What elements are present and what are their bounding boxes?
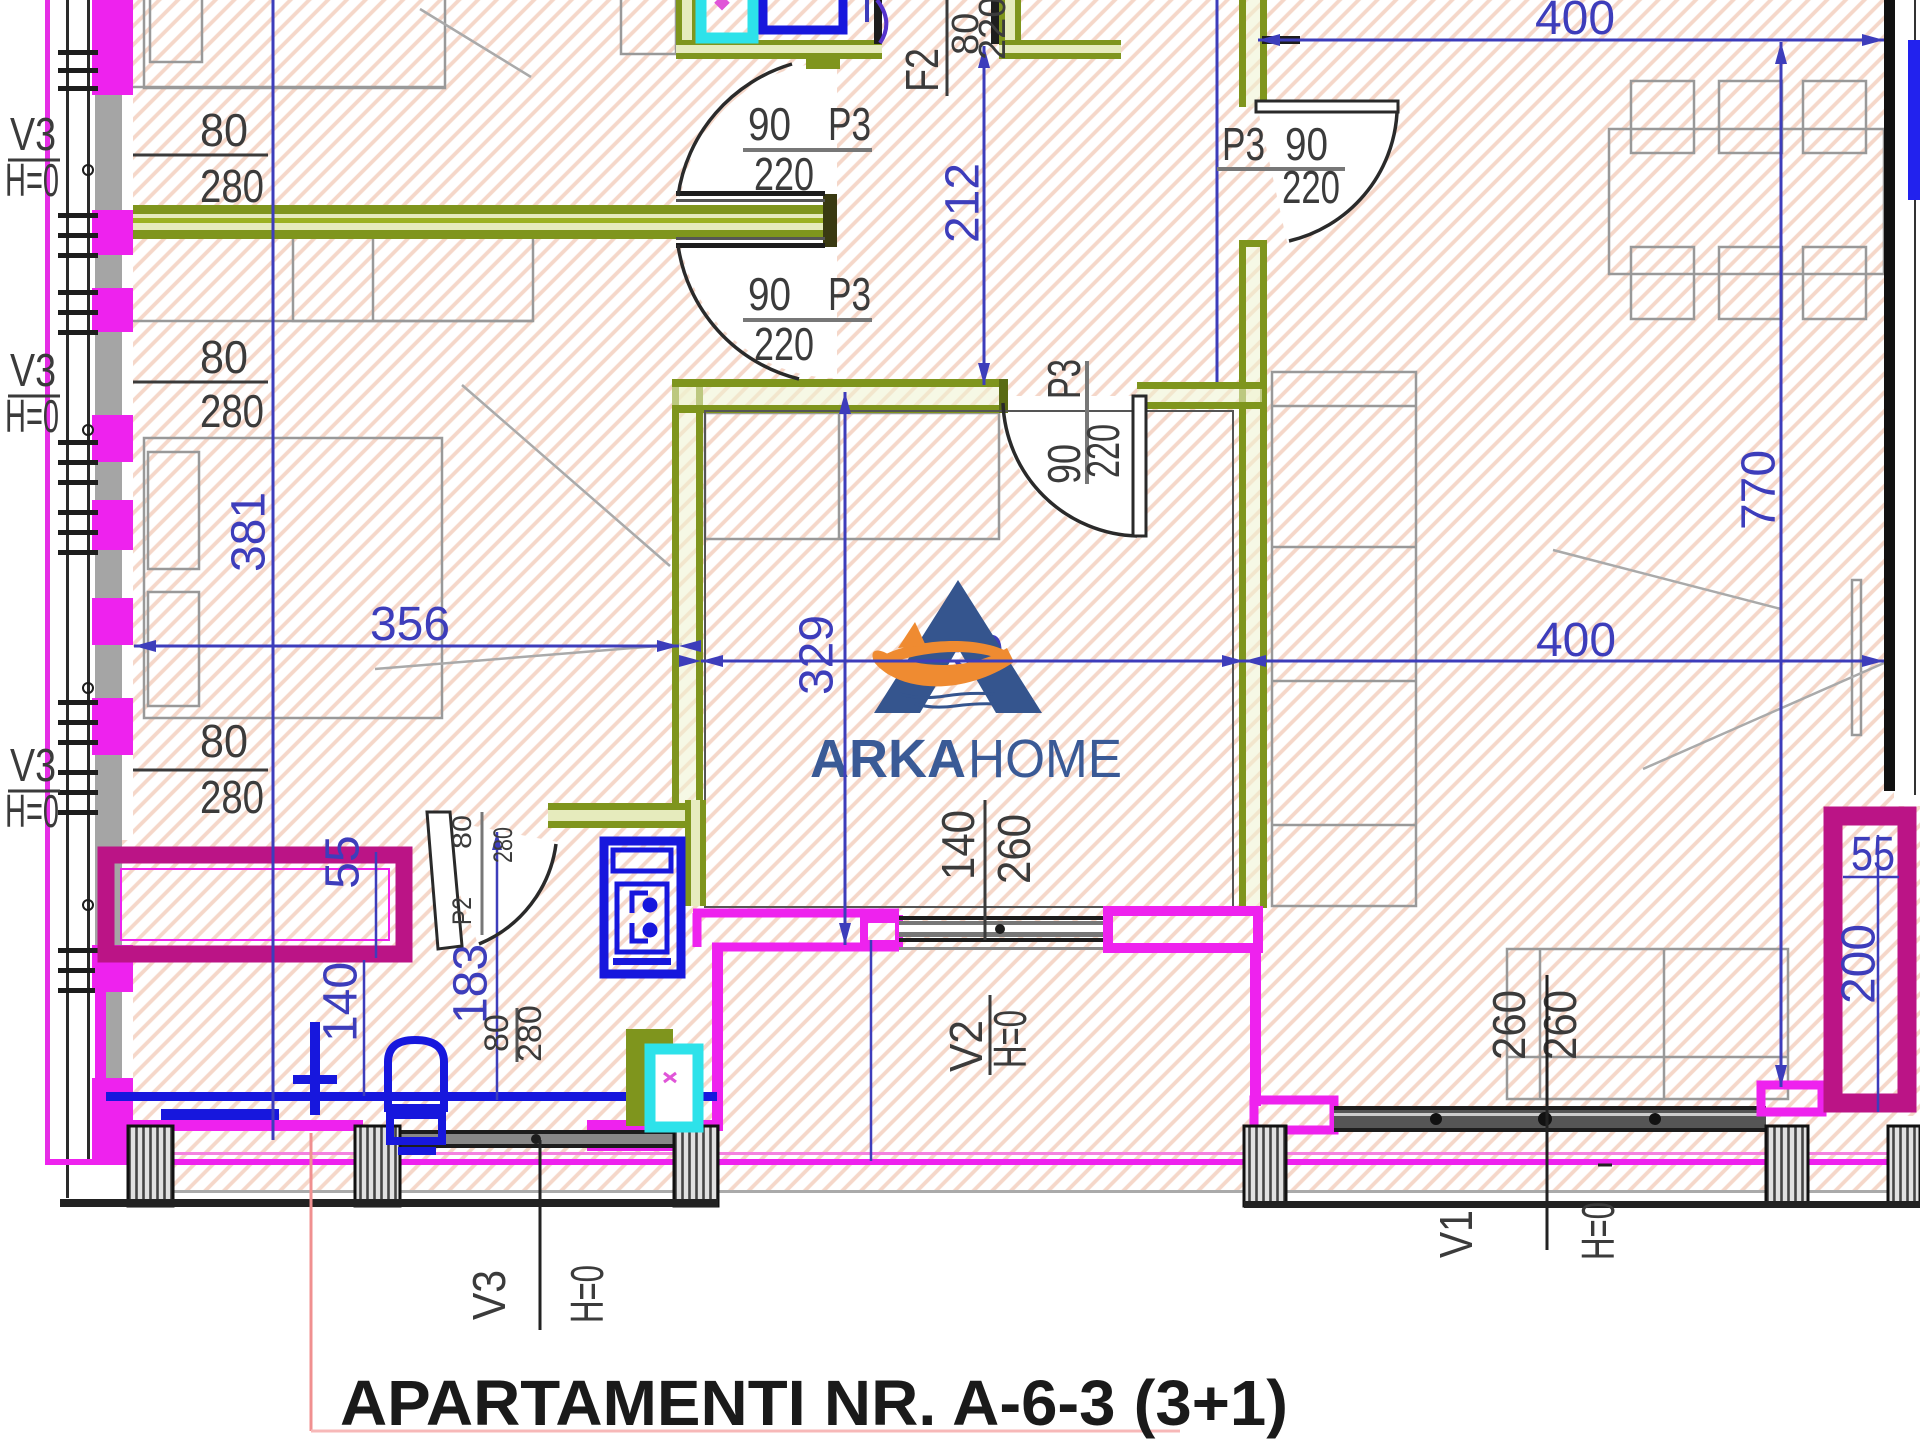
svg-text:H=0: H=0: [561, 1265, 613, 1323]
svg-text:280: 280: [200, 771, 264, 823]
svg-text:P2: P2: [447, 897, 477, 925]
svg-text:V3: V3: [10, 344, 56, 396]
svg-text:55: 55: [317, 835, 370, 888]
svg-text:V1: V1: [1430, 1210, 1482, 1258]
svg-text:80: 80: [200, 331, 248, 383]
svg-text:400: 400: [1536, 614, 1616, 667]
svg-text:90: 90: [748, 268, 791, 320]
svg-text:260: 260: [1534, 990, 1586, 1060]
svg-text:260: 260: [1483, 990, 1535, 1060]
svg-text:HOME: HOME: [968, 729, 1122, 789]
svg-text:280: 280: [511, 1005, 549, 1062]
svg-text:H=0: H=0: [1572, 1202, 1624, 1260]
svg-text:280: 280: [200, 160, 264, 212]
svg-text:55: 55: [1851, 828, 1895, 881]
svg-text:280: 280: [200, 385, 264, 437]
svg-text:P3: P3: [828, 268, 871, 320]
svg-text:V3: V3: [10, 108, 56, 160]
svg-text:80: 80: [447, 815, 477, 849]
svg-text:220: 220: [1077, 424, 1129, 478]
svg-text:90: 90: [748, 98, 791, 150]
svg-text:80: 80: [200, 104, 248, 156]
svg-text:H=0: H=0: [5, 154, 59, 206]
svg-text:770: 770: [1733, 450, 1786, 530]
svg-text:260: 260: [988, 814, 1040, 884]
svg-text:183: 183: [445, 944, 498, 1024]
svg-text:329: 329: [791, 615, 844, 695]
svg-text:400: 400: [1535, 0, 1615, 45]
svg-text:P3: P3: [1222, 118, 1265, 170]
svg-text:P3: P3: [828, 98, 871, 150]
svg-text:V3: V3: [10, 739, 56, 791]
svg-text:381: 381: [223, 492, 276, 572]
svg-text:212: 212: [937, 163, 990, 243]
svg-text:140: 140: [315, 962, 368, 1042]
svg-text:F2: F2: [896, 48, 948, 92]
svg-text:140: 140: [932, 810, 984, 880]
svg-text:H=0: H=0: [5, 390, 59, 442]
svg-text:220: 220: [972, 0, 1014, 60]
svg-text:P3: P3: [1038, 359, 1090, 399]
svg-text:H=0: H=0: [5, 785, 59, 837]
svg-text:220: 220: [754, 148, 814, 200]
svg-text:APARTAMENTI NR. A-6-3 (3+1): APARTAMENTI NR. A-6-3 (3+1): [340, 1367, 1288, 1439]
svg-text:220: 220: [1282, 161, 1340, 213]
svg-text:V3: V3: [463, 1270, 515, 1320]
svg-text:H=0: H=0: [984, 1010, 1036, 1068]
svg-text:80: 80: [200, 715, 248, 767]
svg-text:ARKA: ARKA: [810, 729, 966, 789]
svg-text:280: 280: [488, 827, 518, 863]
svg-text:356: 356: [370, 598, 450, 651]
svg-text:220: 220: [754, 318, 814, 370]
